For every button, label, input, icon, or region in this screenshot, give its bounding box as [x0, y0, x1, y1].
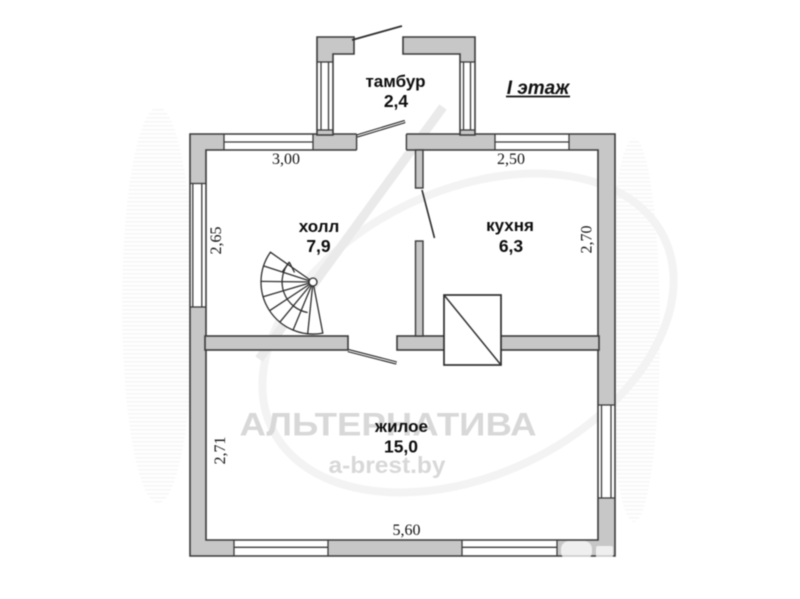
svg-text:15,0: 15,0	[384, 437, 418, 457]
svg-text:2,71: 2,71	[212, 437, 229, 465]
svg-text:2,50: 2,50	[497, 151, 525, 168]
svg-text:2,65: 2,65	[208, 227, 225, 255]
svg-text:2,4: 2,4	[384, 91, 409, 111]
svg-text:7,9: 7,9	[306, 236, 331, 256]
svg-text:2,70: 2,70	[579, 226, 596, 254]
svg-text:холл: холл	[299, 217, 340, 236]
svg-text:тамбур: тамбур	[365, 72, 425, 91]
svg-text:жилое: жилое	[374, 417, 428, 436]
svg-text:кухня: кухня	[486, 216, 534, 235]
svg-text:6,3: 6,3	[499, 236, 524, 256]
svg-text:3,00: 3,00	[272, 151, 300, 168]
svg-text:5,60: 5,60	[393, 522, 421, 539]
